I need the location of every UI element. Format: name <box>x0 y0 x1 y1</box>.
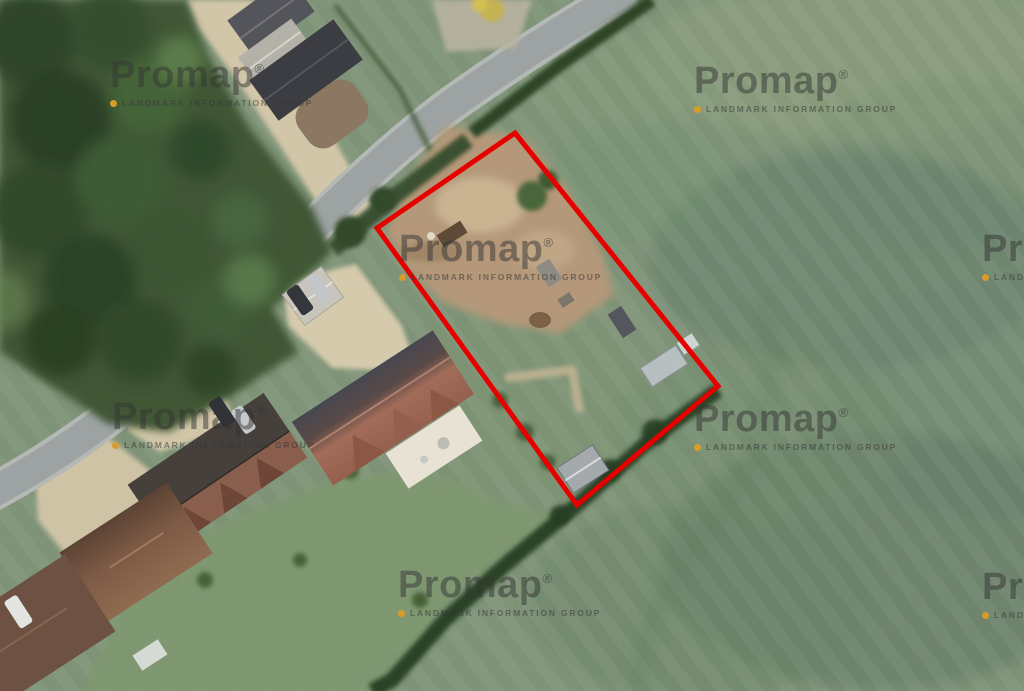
aerial-site-plan: Promap® LANDMARK INFORMATION GROUP Proma… <box>0 0 1024 691</box>
roadside-tree-2 <box>370 187 396 213</box>
dirt-light-patch <box>435 177 525 233</box>
light-debris <box>427 232 435 240</box>
dirt-dark-streak <box>400 242 460 262</box>
dirt-patch <box>529 312 551 328</box>
satellite-photo <box>0 0 1024 691</box>
roadside-tree <box>334 216 366 248</box>
